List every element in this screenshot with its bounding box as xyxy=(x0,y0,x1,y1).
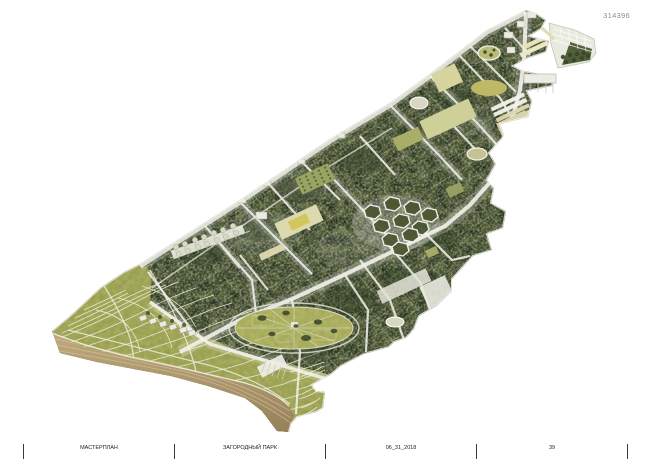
svg-text:39: 39 xyxy=(549,445,555,451)
svg-text:ЗАГОРОДНЫЙ ПАРК: ЗАГОРОДНЫЙ ПАРК xyxy=(223,443,278,451)
svg-text:314396: 314396 xyxy=(603,11,630,20)
svg-text:06_31_2018: 06_31_2018 xyxy=(386,445,417,451)
svg-text:МАСТЕРПЛАН: МАСТЕРПЛАН xyxy=(80,445,118,451)
